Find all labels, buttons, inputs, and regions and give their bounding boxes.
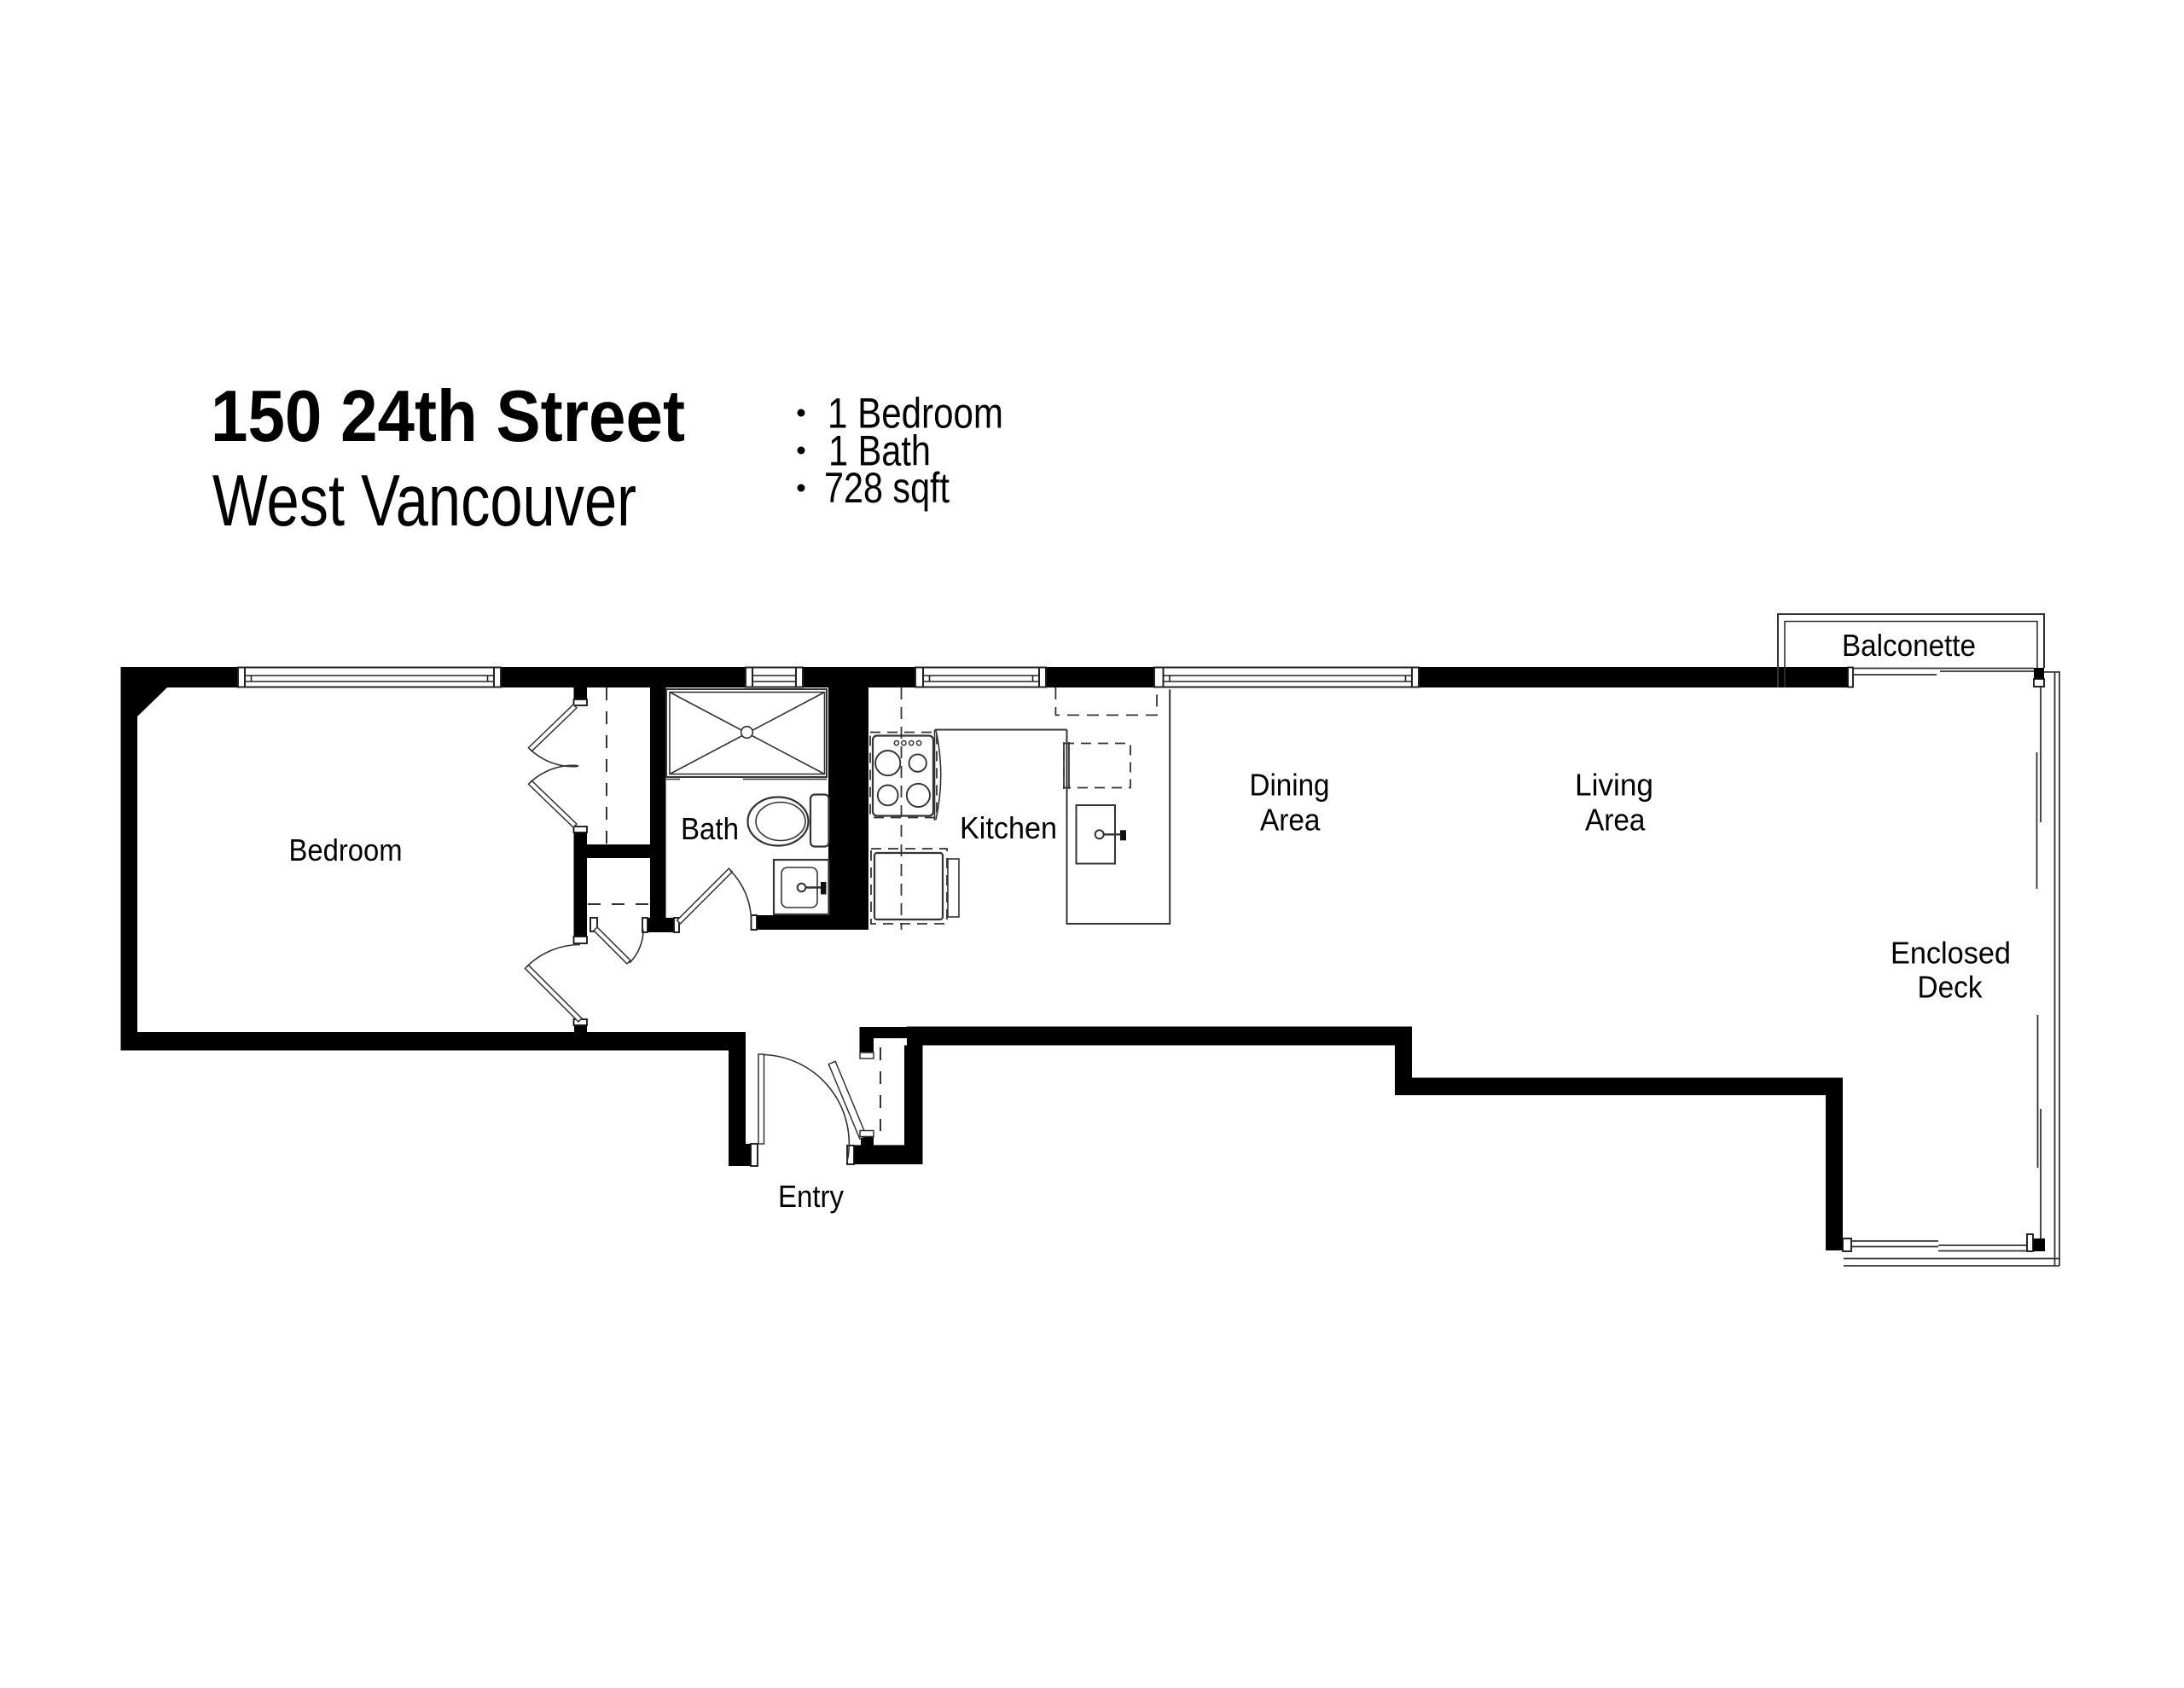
- svg-text:Enclosed: Enclosed: [1891, 936, 2011, 971]
- svg-text:Dining: Dining: [1250, 767, 1330, 802]
- svg-text:Kitchen: Kitchen: [960, 810, 1057, 845]
- svg-text:728 sqft: 728 sqft: [824, 464, 950, 512]
- svg-text:Area: Area: [1260, 803, 1321, 838]
- svg-text:West Vancouver: West Vancouver: [212, 461, 636, 542]
- svg-text:Balconette: Balconette: [1842, 628, 1976, 663]
- svg-text:Area: Area: [1585, 803, 1646, 838]
- svg-text:Living: Living: [1575, 767, 1653, 802]
- svg-text:Bath: Bath: [681, 811, 739, 846]
- svg-text:Bedroom: Bedroom: [289, 832, 403, 867]
- svg-text:Entry: Entry: [778, 1179, 844, 1214]
- svg-text:Deck: Deck: [1918, 970, 1984, 1005]
- svg-text:150 24th Street: 150 24th Street: [211, 376, 685, 457]
